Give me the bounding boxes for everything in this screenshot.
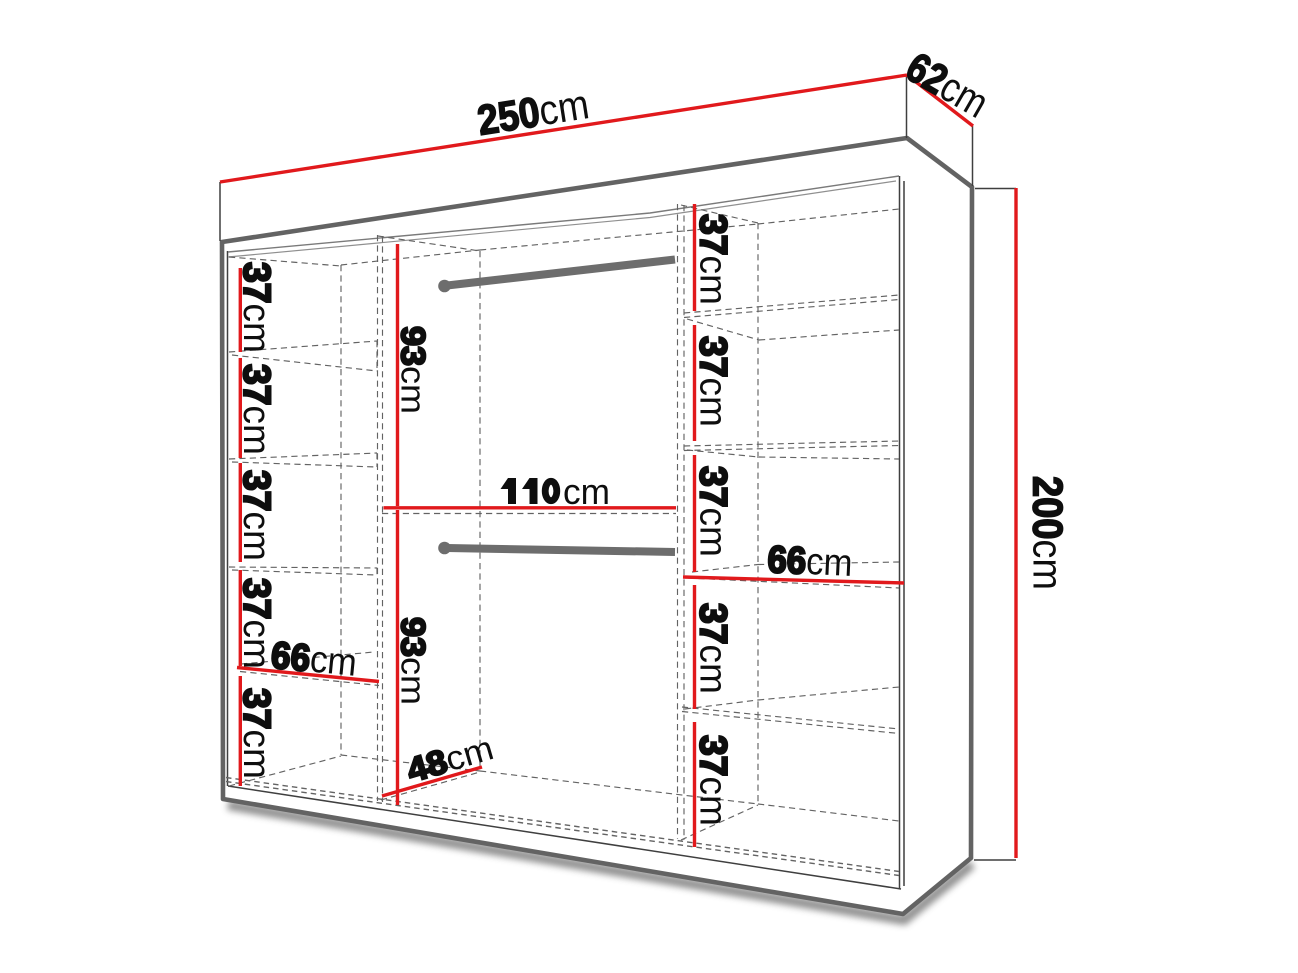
svg-text:93cm: 93cm xyxy=(394,617,432,705)
svg-text:200cm: 200cm xyxy=(1025,476,1072,590)
svg-text:66cm: 66cm xyxy=(269,635,359,685)
svg-text:37cm: 37cm xyxy=(235,688,277,779)
svg-text:37cm: 37cm xyxy=(692,735,734,826)
svg-text:37cm: 37cm xyxy=(692,336,734,427)
svg-text:93cm: 93cm xyxy=(394,326,432,414)
svg-text:37cm: 37cm xyxy=(692,466,734,557)
svg-text:37cm: 37cm xyxy=(235,470,277,561)
svg-text:37cm: 37cm xyxy=(235,262,277,353)
svg-text:37cm: 37cm xyxy=(235,364,277,455)
svg-text:66cm: 66cm xyxy=(767,539,854,585)
svg-text:cm: cm xyxy=(563,471,610,512)
svg-text:37cm: 37cm xyxy=(692,603,734,694)
svg-text:37cm: 37cm xyxy=(692,214,734,305)
